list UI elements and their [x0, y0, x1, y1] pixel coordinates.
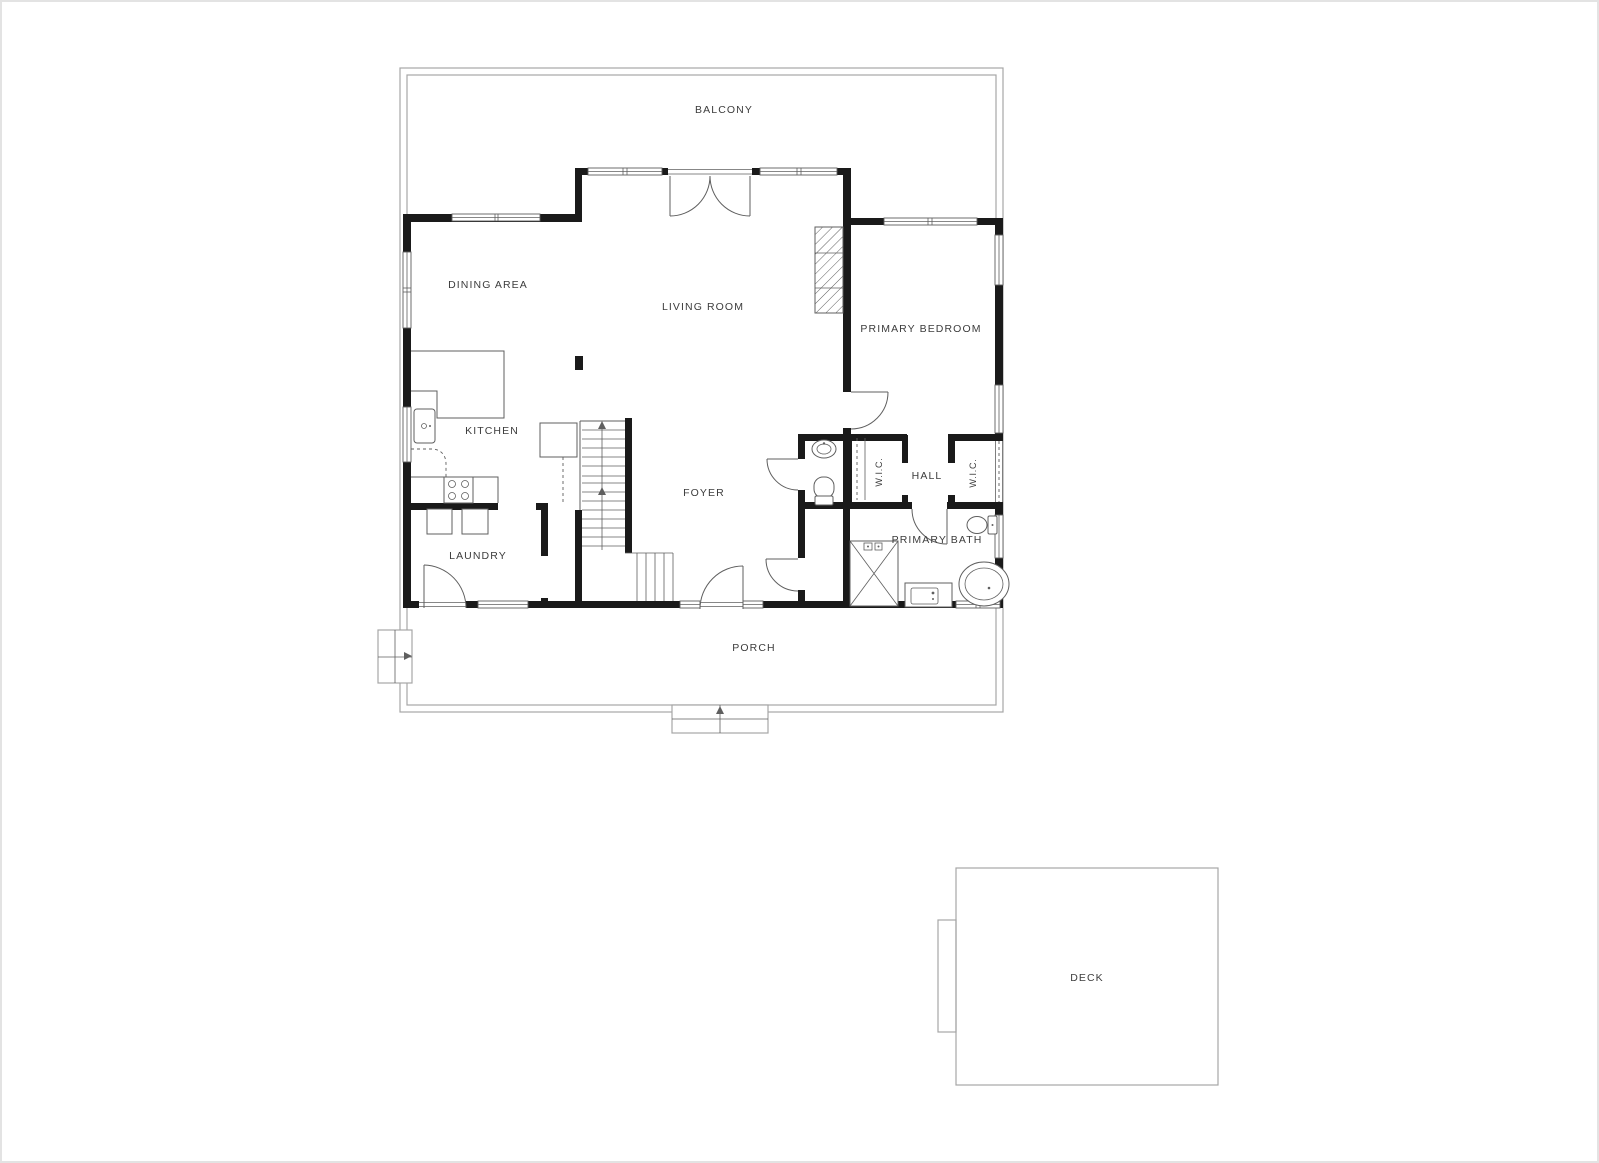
window [588, 168, 662, 175]
room-label-laundry: LAUNDRY [449, 550, 507, 562]
dryer [462, 509, 488, 534]
front-door [700, 566, 743, 609]
window [478, 601, 528, 608]
bathtub [959, 562, 1009, 606]
window [452, 214, 540, 221]
sidelight-window [743, 601, 763, 608]
powder-toilet [814, 477, 834, 505]
stair-up-arrow [598, 421, 606, 429]
room-label-deck: DECK [1070, 972, 1104, 984]
room-label-primary-bedroom: PRIMARY BEDROOM [860, 323, 981, 335]
bedroom-door [851, 392, 888, 429]
interior-walls [403, 356, 995, 608]
primary-bath-fixtures [850, 516, 1009, 607]
sidelight-window [680, 601, 700, 608]
closet-door [766, 559, 798, 591]
porch-side-steps [378, 630, 412, 683]
fireplace [815, 227, 843, 313]
powder-room-door [767, 459, 798, 490]
room-label-wic-right: W.I.C. [968, 458, 978, 487]
room-label-porch: PORCH [732, 642, 775, 654]
room-label-dining-area: DINING AREA [448, 279, 528, 291]
room-label-hall: HALL [912, 470, 943, 482]
shower [850, 541, 898, 606]
stairs [540, 421, 673, 601]
french-door [668, 168, 752, 216]
laundry-door [419, 565, 466, 608]
column [575, 356, 583, 370]
window [995, 235, 1003, 285]
powder-room-fixtures [812, 440, 836, 505]
stair-up-arrow [598, 487, 606, 495]
bath-toilet [967, 516, 997, 534]
washer [427, 509, 452, 534]
laundry-fixtures [427, 509, 488, 534]
stove [444, 477, 473, 503]
kitchen-sink [414, 409, 435, 443]
porch-front-steps [672, 705, 768, 733]
powder-sink [812, 440, 836, 458]
room-label-foyer: FOYER [683, 487, 725, 499]
window [760, 168, 837, 175]
floor-plan-page: BALCONY DINING AREA LIVING ROOM PRIMARY … [0, 0, 1599, 1163]
window [403, 407, 411, 462]
room-label-primary-bath: PRIMARY BATH [892, 534, 983, 546]
window [403, 252, 411, 328]
room-label-wic-left: W.I.C. [874, 457, 884, 486]
stair-closet [540, 423, 577, 457]
balcony-porch-outline [400, 68, 1003, 712]
bath-vanity [905, 583, 952, 607]
room-label-balcony: BALCONY [695, 104, 753, 116]
floor-plan-drawing: BALCONY DINING AREA LIVING ROOM PRIMARY … [0, 0, 1599, 1163]
room-label-kitchen: KITCHEN [465, 425, 519, 437]
window [995, 385, 1003, 433]
upper-cabinet-dashed [411, 449, 446, 500]
room-label-living-room: LIVING ROOM [662, 301, 744, 313]
window [884, 218, 977, 225]
kitchen-peninsula-counter [411, 351, 504, 418]
